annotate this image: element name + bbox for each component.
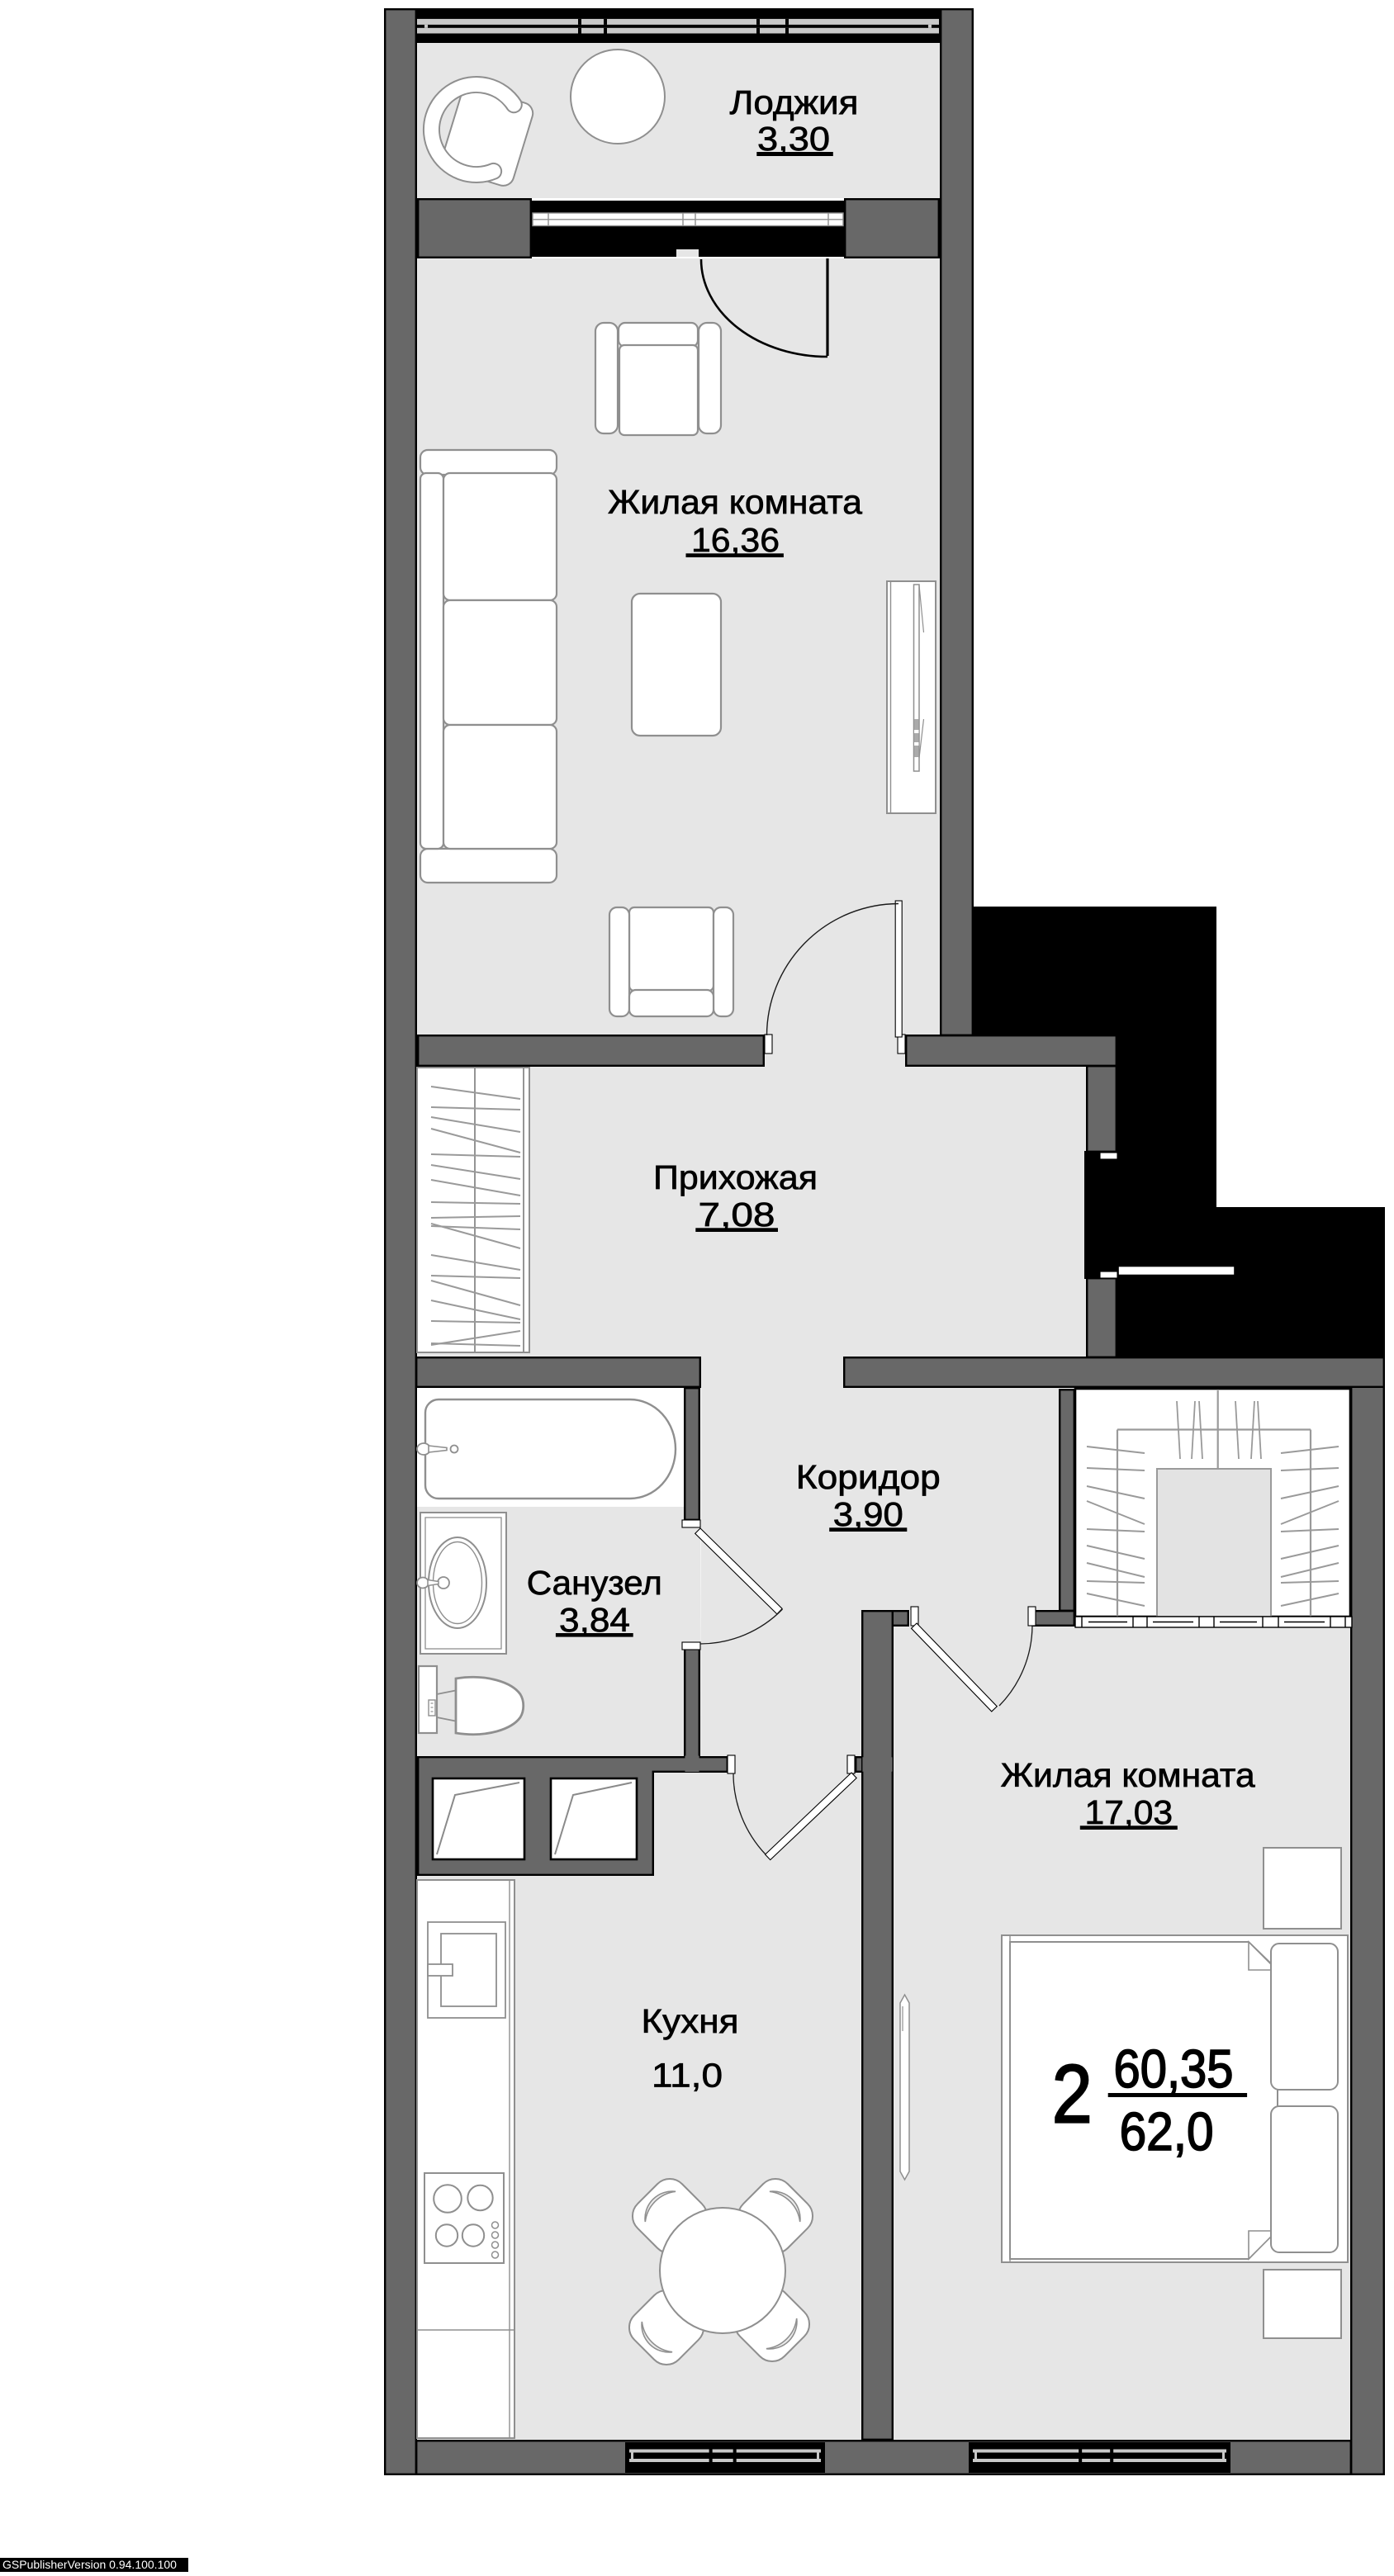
svg-text:Прихожая: Прихожая — [653, 1158, 818, 1196]
svg-text:7,08: 7,08 — [699, 1196, 775, 1234]
svg-text:11,0: 11,0 — [652, 2057, 723, 2095]
svg-text:62,0: 62,0 — [1120, 2101, 1214, 2162]
svg-text:2: 2 — [1052, 2048, 1093, 2140]
svg-text:Лоджия: Лоджия — [730, 83, 859, 121]
svg-text:Санузел: Санузел — [527, 1564, 662, 1602]
svg-text:Жилая комната: Жилая комната — [1001, 1756, 1255, 1794]
svg-text:Кухня: Кухня — [642, 2002, 739, 2040]
svg-text:Коридор: Коридор — [796, 1458, 941, 1496]
svg-text:Жилая комната: Жилая комната — [608, 483, 862, 521]
svg-text:60,35: 60,35 — [1114, 2039, 1234, 2099]
svg-text:16,36: 16,36 — [691, 521, 780, 559]
svg-text:GSPublisherVersion 0.94.100.10: GSPublisherVersion 0.94.100.100 — [2, 2558, 177, 2571]
svg-text:3,90: 3,90 — [833, 1495, 903, 1533]
svg-text:17,03: 17,03 — [1085, 1793, 1174, 1831]
